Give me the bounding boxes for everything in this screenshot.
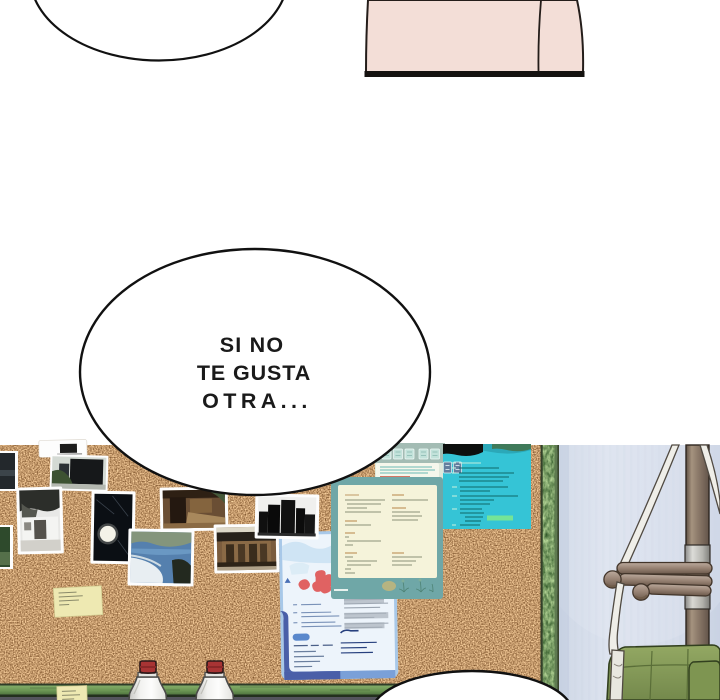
svg-text:TE GUSTA: TE GUSTA <box>197 361 311 385</box>
svg-text:OTRA...: OTRA... <box>202 389 312 413</box>
svg-text:SI NO: SI NO <box>220 333 285 357</box>
